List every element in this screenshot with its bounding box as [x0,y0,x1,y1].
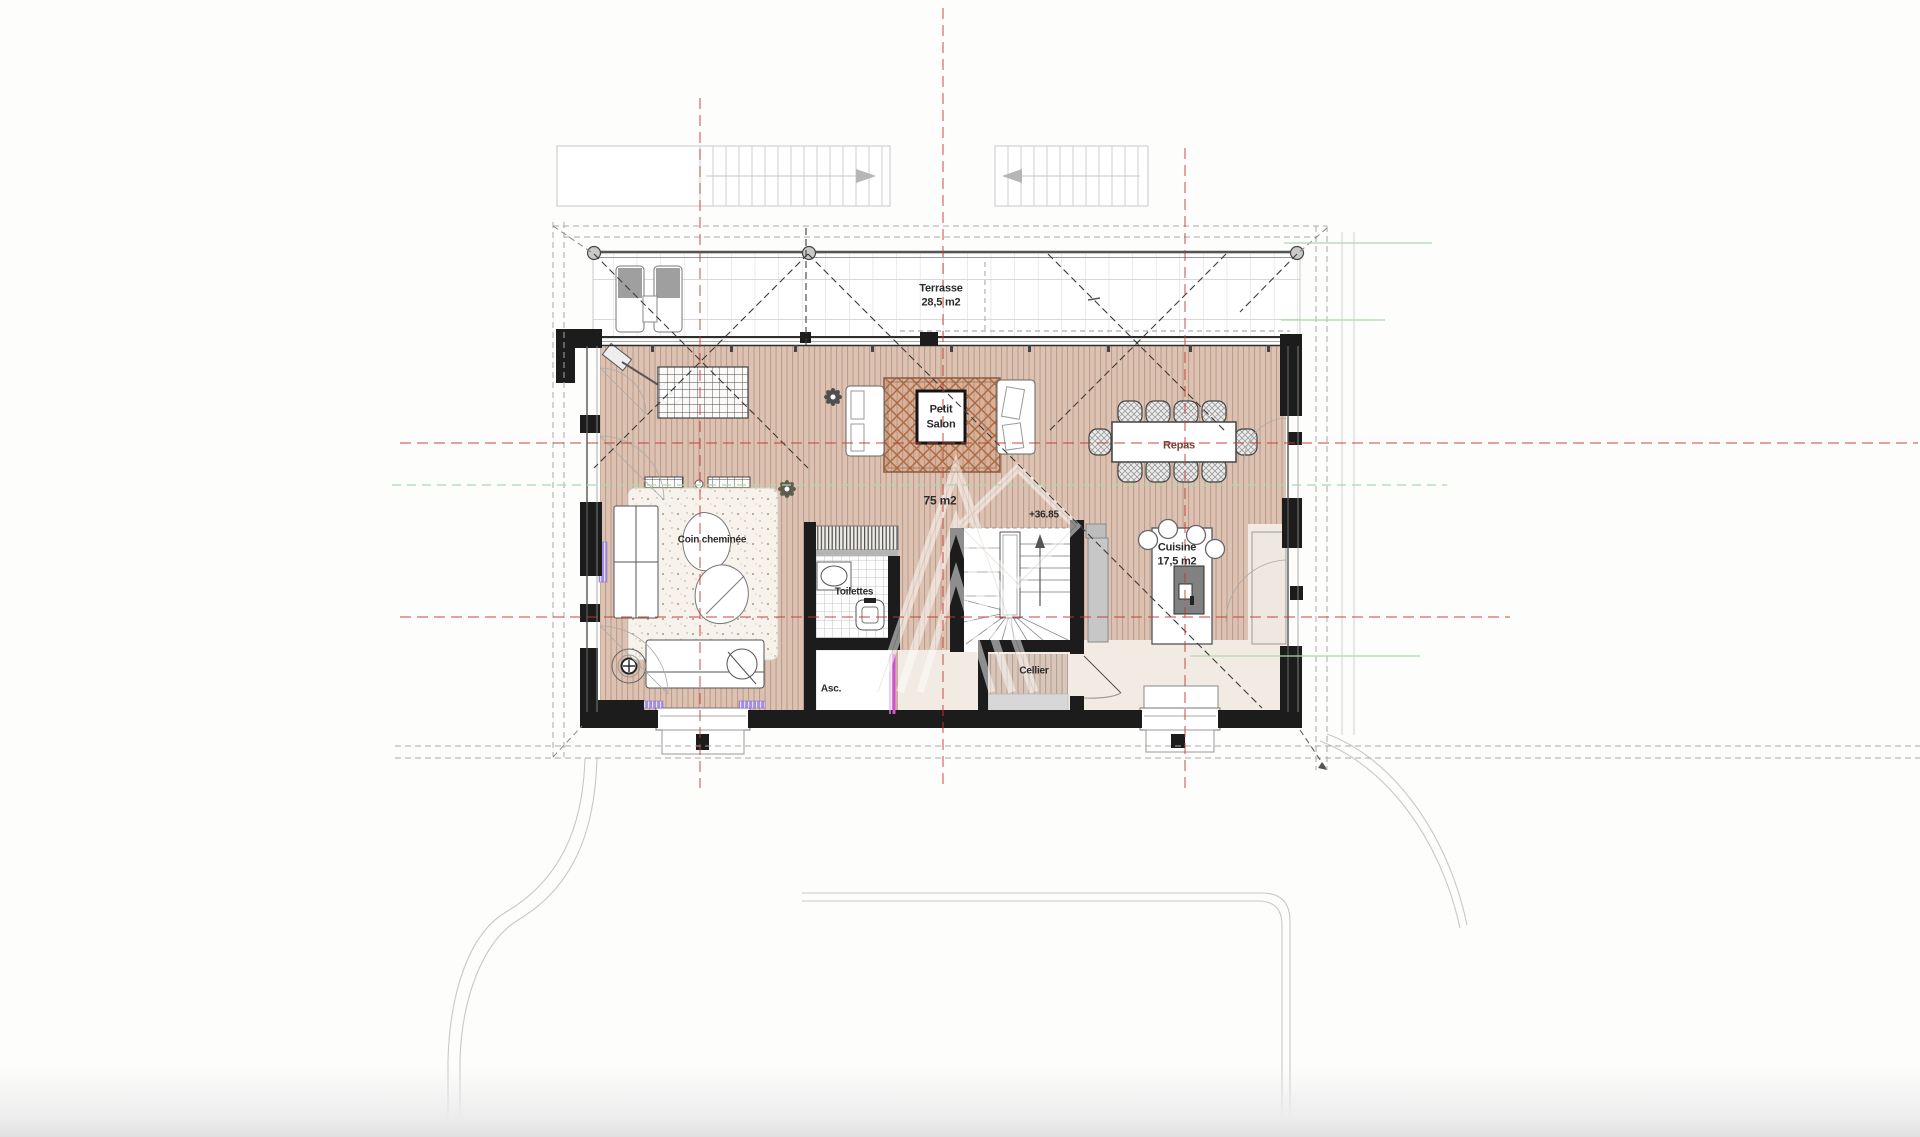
grid-rug [658,367,748,418]
pendant-light [695,480,703,488]
lounge-blob-chair-2 [695,565,748,624]
room-label-toilettes: Toilettes [835,586,874,599]
bottom-gradient-band [0,1067,1920,1137]
room-label-terrasse: Terrasse [919,283,962,296]
room-area-terrasse: 28,5 m2 [922,297,961,310]
petit-salon-sofa-left [846,386,884,456]
floor-plan-canvas: Terrasse 28,5 m2 Petit Salon Repas 75 m2… [0,0,1920,1137]
room-label-cellier: Cellier [1019,665,1048,678]
room-label-petit-salon-1: Petit [930,404,953,417]
room-label-ascenseur: Asc. [821,683,841,696]
window-bench [1144,686,1218,708]
petit-salon-label-box [917,391,965,443]
sofa-west [614,506,658,618]
exterior-stairs-top [557,146,1148,206]
daybed [646,640,764,688]
ceiling-fan-icon [778,480,796,498]
room-label-cuisine: Cuisine [1158,542,1196,555]
level-label: +36.85 [1029,509,1059,522]
floor-plan-drawing [0,0,1920,1137]
room-label-repas: Repas [1163,440,1195,453]
ceiling-fan-icon-2 [824,388,842,406]
room-area-cuisine: 17,5 m2 [1158,556,1197,569]
area-label-75m2: 75 m2 [923,495,956,508]
room-label-petit-salon-2: Salon [927,419,956,432]
room-label-coin-cheminee: Coin cheminée [678,534,747,547]
